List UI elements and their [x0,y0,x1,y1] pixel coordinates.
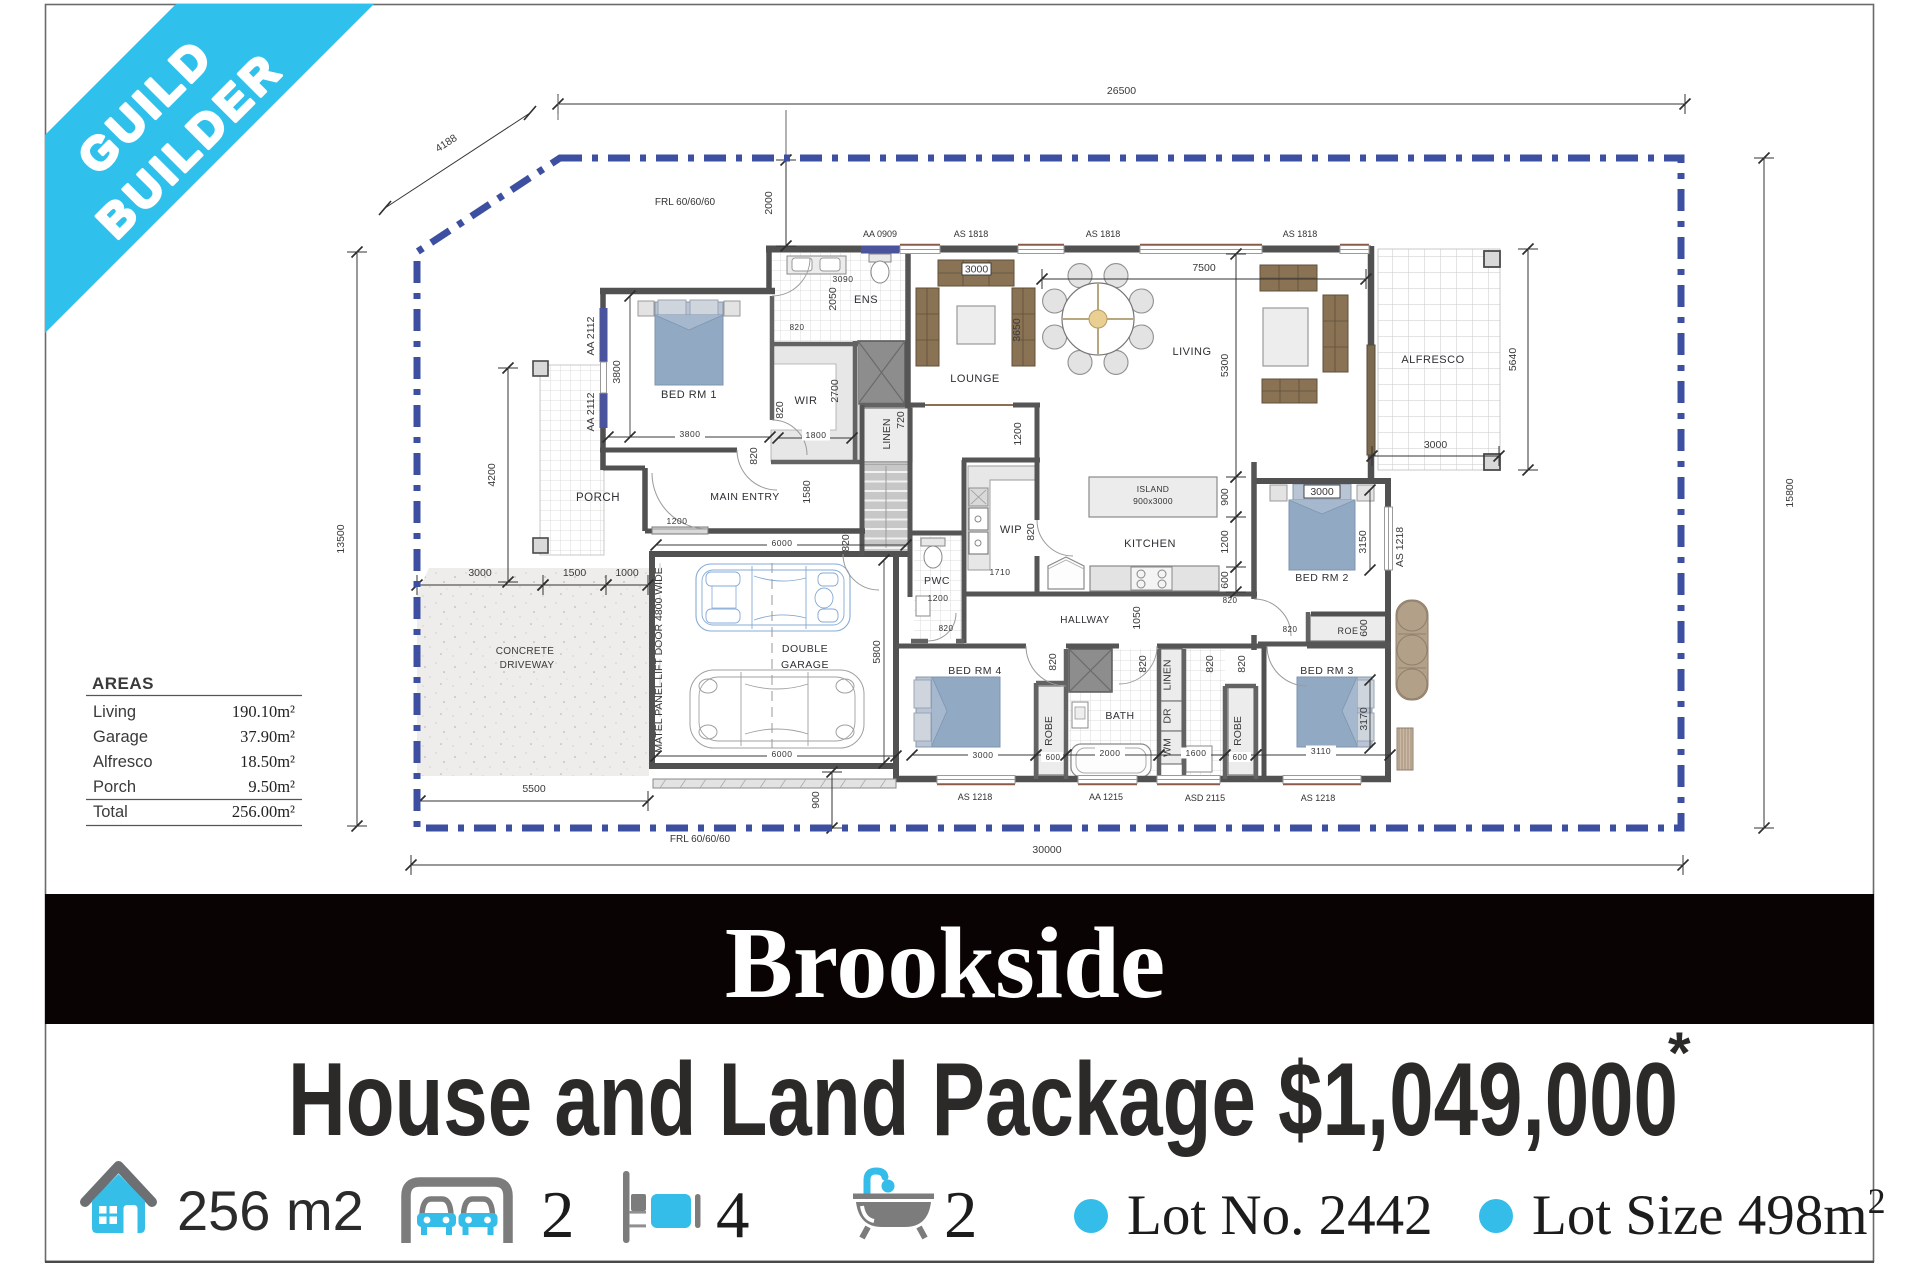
svg-text:*: * [1668,1021,1691,1086]
svg-text:Total: Total [93,803,128,821]
svg-text:HALLWAY: HALLWAY [1060,615,1109,626]
svg-text:820: 820 [1025,523,1037,541]
svg-text:2050: 2050 [827,287,839,311]
svg-text:DRIVEWAY: DRIVEWAY [500,660,555,671]
svg-text:2700: 2700 [829,379,841,403]
svg-text:DOUBLE: DOUBLE [782,643,828,655]
svg-text:GARAGE: GARAGE [781,659,829,671]
svg-text:2000: 2000 [1100,748,1121,758]
svg-text:Lot Size 498m2: Lot Size 498m2 [1532,1181,1886,1247]
svg-text:WM: WM [1162,738,1174,757]
svg-text:Porch: Porch [93,778,136,796]
svg-text:AS 1218: AS 1218 [1301,793,1336,803]
svg-text:4200: 4200 [486,463,498,487]
svg-text:ROBE: ROBE [1043,716,1055,746]
svg-text:LOUNGE: LOUNGE [950,373,999,385]
svg-text:BATH: BATH [1105,710,1134,722]
svg-text:5800: 5800 [871,640,883,664]
svg-text:820: 820 [1236,655,1248,673]
svg-text:BED RM 2: BED RM 2 [1295,572,1349,584]
svg-text:MATEL PANEL LIFT DOOR 4800 WID: MATEL PANEL LIFT DOOR 4800 WIDE [653,567,665,752]
svg-text:5640: 5640 [1507,348,1519,372]
svg-text:3110: 3110 [1311,746,1331,756]
svg-text:6000: 6000 [772,538,793,548]
svg-text:AS 1818: AS 1818 [954,229,989,239]
svg-text:900: 900 [1219,488,1231,506]
svg-text:820: 820 [840,534,852,552]
svg-text:ENS: ENS [854,294,878,306]
svg-text:House and Land Package $1,049,: House and Land Package $1,049,000 [288,1042,1678,1158]
svg-text:1600: 1600 [1186,748,1207,758]
svg-text:3000: 3000 [965,264,989,276]
svg-text:Garage: Garage [93,728,148,746]
svg-text:820: 820 [1223,596,1238,605]
svg-text:ASD 2115: ASD 2115 [1185,793,1225,803]
svg-text:Living: Living [93,703,136,721]
svg-text:3000: 3000 [1424,439,1448,451]
svg-text:2: 2 [944,1178,978,1252]
svg-text:CONCRETE: CONCRETE [496,646,555,657]
svg-text:190.10m²: 190.10m² [232,702,295,721]
svg-text:BED RM 4: BED RM 4 [948,665,1002,677]
svg-text:BED RM 1: BED RM 1 [661,389,717,401]
svg-text:AS 1818: AS 1818 [1283,229,1318,239]
svg-text:9.50m²: 9.50m² [248,777,295,796]
svg-text:820: 820 [774,401,786,419]
svg-text:BED RM 3: BED RM 3 [1300,665,1354,677]
svg-text:1200: 1200 [667,516,688,526]
svg-text:15800: 15800 [1784,478,1796,507]
svg-text:5300: 5300 [1219,354,1231,378]
svg-text:KITCHEN: KITCHEN [1124,538,1176,550]
svg-text:26500: 26500 [1107,85,1136,97]
svg-text:820: 820 [748,447,760,465]
svg-text:FRL 60/60/60: FRL 60/60/60 [655,197,716,208]
svg-text:820: 820 [1137,655,1149,673]
svg-text:WIR: WIR [795,395,818,407]
svg-text:256.00m²: 256.00m² [232,802,295,821]
svg-text:720: 720 [895,411,907,429]
svg-text:820: 820 [1204,655,1216,673]
svg-text:1800: 1800 [806,430,827,440]
svg-text:DR: DR [1162,708,1174,724]
svg-text:ROE: ROE [1337,626,1358,636]
svg-text:30000: 30000 [1032,844,1061,856]
svg-text:3090: 3090 [833,274,854,284]
svg-text:256 m2: 256 m2 [177,1179,364,1242]
svg-text:3170: 3170 [1358,707,1370,731]
svg-text:5500: 5500 [522,783,546,795]
svg-text:PWC: PWC [924,575,950,587]
svg-text:820: 820 [790,323,805,332]
svg-text:LINEN: LINEN [881,419,893,450]
svg-text:3800: 3800 [680,429,701,439]
svg-text:18.50m²: 18.50m² [240,752,295,771]
svg-text:Lot No. 2442: Lot No. 2442 [1127,1184,1433,1247]
svg-text:ISLAND: ISLAND [1137,484,1170,494]
svg-text:900x3000: 900x3000 [1133,496,1173,506]
svg-text:7500: 7500 [1192,262,1216,274]
svg-text:AA 2112: AA 2112 [585,392,597,431]
svg-text:6000: 6000 [772,749,793,759]
svg-text:ROBE: ROBE [1232,716,1244,746]
svg-text:PORCH: PORCH [576,492,620,504]
svg-text:3000: 3000 [973,750,994,760]
svg-text:1500: 1500 [563,567,587,579]
svg-text:AS 1218: AS 1218 [958,792,993,802]
svg-text:1200: 1200 [1012,422,1024,446]
svg-text:600: 600 [1233,753,1248,762]
svg-text:1050: 1050 [1131,606,1143,630]
svg-text:WIP: WIP [1000,524,1022,536]
svg-text:2000: 2000 [763,191,775,215]
svg-text:900: 900 [810,791,822,809]
svg-text:AS 1818: AS 1818 [1086,229,1121,239]
svg-text:3650: 3650 [1011,318,1023,342]
svg-text:Alfresco: Alfresco [93,753,153,771]
svg-text:AREAS: AREAS [92,674,154,693]
svg-text:LINEN: LINEN [1162,660,1174,691]
svg-text:600: 600 [1219,571,1231,589]
svg-text:820: 820 [1283,625,1298,634]
svg-text:1200: 1200 [1219,530,1231,554]
svg-text:AA 2112: AA 2112 [585,316,597,355]
svg-text:3800: 3800 [611,360,623,384]
svg-text:AA 1215: AA 1215 [1089,792,1123,802]
svg-text:37.90m²: 37.90m² [240,727,295,746]
svg-text:LIVING: LIVING [1172,346,1211,358]
svg-text:1000: 1000 [615,567,639,579]
svg-text:Brookside: Brookside [725,907,1165,1020]
svg-text:FRL 60/60/60: FRL 60/60/60 [670,834,731,845]
svg-text:1200: 1200 [928,593,949,603]
svg-text:600: 600 [1046,753,1061,762]
svg-text:3150: 3150 [1357,530,1369,554]
svg-text:3000: 3000 [1310,486,1334,498]
svg-text:3000: 3000 [468,567,492,579]
svg-text:1580: 1580 [801,480,813,504]
svg-text:600: 600 [1358,619,1370,637]
svg-text:AS 1218: AS 1218 [1394,527,1406,567]
svg-text:ALFRESCO: ALFRESCO [1401,354,1464,366]
svg-text:AA 0909: AA 0909 [863,229,897,239]
svg-text:2: 2 [541,1178,575,1252]
svg-text:820: 820 [1047,653,1059,671]
svg-text:820: 820 [939,624,954,633]
svg-text:4: 4 [716,1178,750,1252]
svg-text:13500: 13500 [335,524,347,553]
svg-text:MAIN ENTRY: MAIN ENTRY [710,491,780,503]
svg-text:1710: 1710 [990,567,1011,577]
